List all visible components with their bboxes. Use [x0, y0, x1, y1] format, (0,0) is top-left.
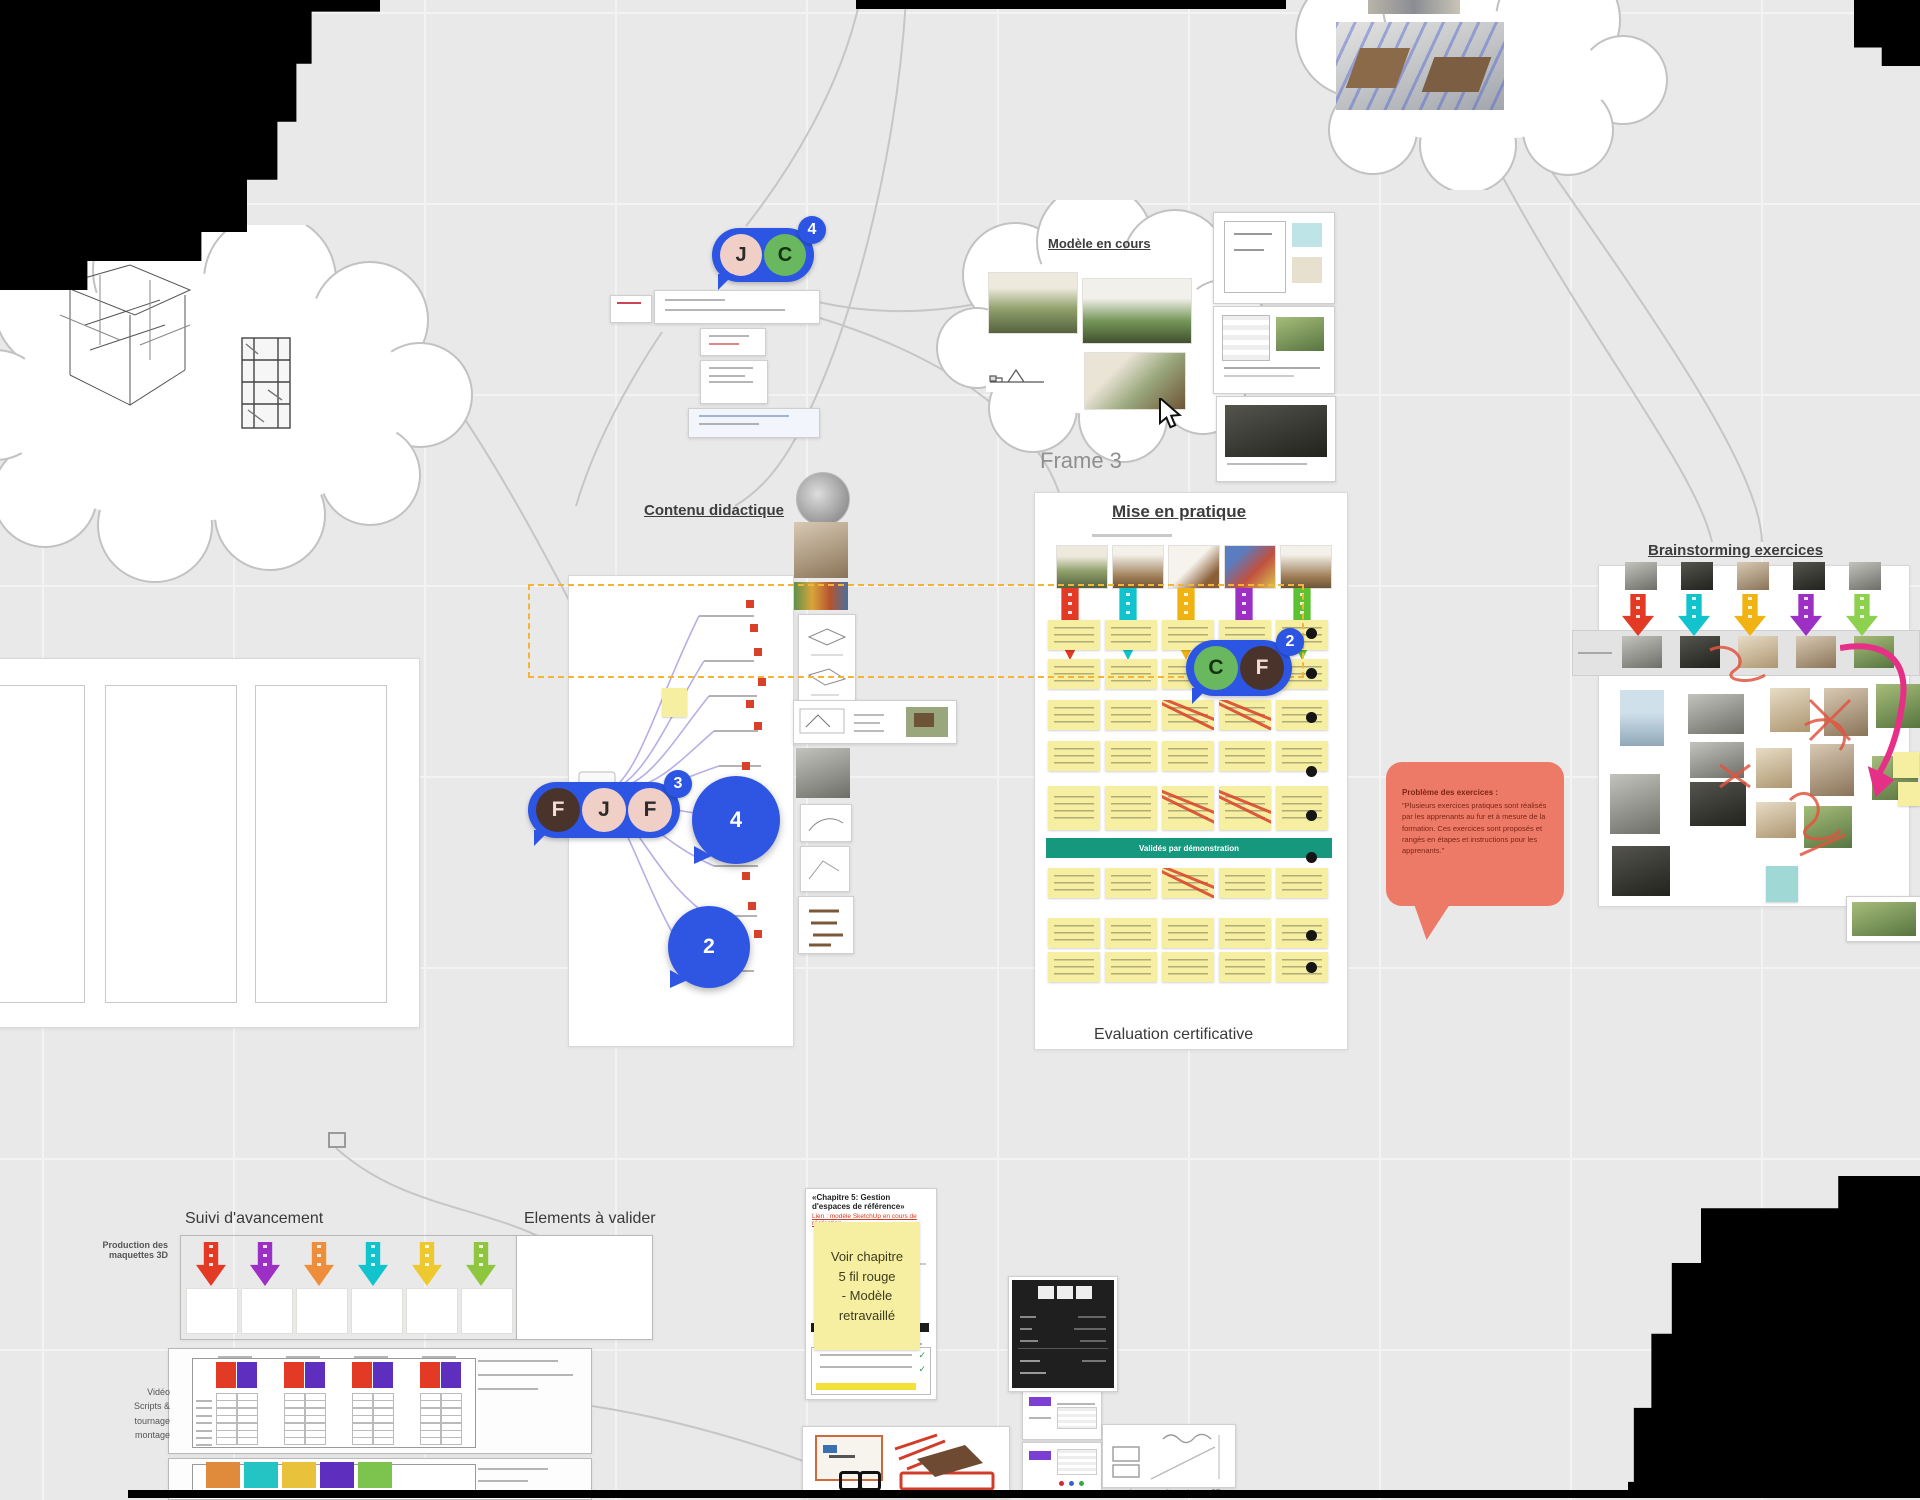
table-cell	[441, 1437, 462, 1445]
sketch-small-2[interactable]	[800, 846, 850, 892]
production-label-line: maquettes 3D	[88, 1250, 168, 1260]
row-label-bar	[196, 1437, 212, 1439]
sticky-note[interactable]	[1048, 918, 1100, 948]
brainstorm-photo[interactable]	[1737, 562, 1769, 590]
suivi-thumb[interactable]	[351, 1288, 403, 1334]
reference-card-house[interactable]	[1213, 306, 1335, 394]
sticky-note-line: Voir chapitre	[831, 1247, 903, 1267]
form-doc-2[interactable]	[1022, 1442, 1102, 1496]
sticky-text-lines	[1111, 959, 1151, 976]
brainstorm-photo-card[interactable]	[1846, 896, 1920, 942]
sticky-text-lines	[1111, 796, 1151, 821]
cloud-title-modele-en-cours[interactable]: Modèle en cours	[1048, 236, 1151, 251]
header-cell-red	[420, 1362, 440, 1388]
table-cell	[216, 1437, 237, 1445]
mise-thumb-furn[interactable]	[1112, 545, 1164, 589]
table-cell	[420, 1437, 441, 1445]
production-label-line: Production des	[88, 1240, 168, 1250]
comment-marker-2[interactable]: 2	[668, 906, 750, 988]
header-cell-purple	[441, 1362, 461, 1388]
sticky-text-lines	[1111, 748, 1151, 765]
row-label-bar	[196, 1444, 212, 1446]
sticky-note[interactable]	[1162, 741, 1214, 771]
sticky-text-lines	[1054, 796, 1094, 821]
mise-thumb-house[interactable]	[1056, 545, 1108, 589]
bullet-dot	[1306, 810, 1317, 821]
photo-landscape[interactable]	[796, 748, 850, 798]
brainstorm-photo[interactable]	[1793, 562, 1825, 590]
bullet-dot	[1306, 852, 1317, 863]
sticky-note[interactable]	[1276, 700, 1328, 730]
house-render-1[interactable]	[988, 272, 1078, 334]
sticky-text-lines	[1054, 707, 1094, 724]
avatar-f[interactable]: F	[536, 788, 580, 832]
sticky-note[interactable]	[1105, 741, 1157, 771]
avatar-f[interactable]: F	[1240, 646, 1284, 690]
sticky-note[interactable]	[1105, 918, 1157, 948]
sticky-note[interactable]	[1219, 918, 1271, 948]
sticky-note[interactable]	[1105, 700, 1157, 730]
whiteboard-canvas[interactable]: { "board": { "accent_blue": "#2b55e2", "…	[0, 0, 1920, 1498]
brainstorm-photo[interactable]	[1610, 774, 1660, 834]
presence-badge: 3	[664, 770, 692, 798]
board-icon-small[interactable]	[328, 1132, 346, 1148]
table-cell	[305, 1437, 326, 1445]
sticky-text-lines	[1111, 875, 1151, 892]
sticky-note[interactable]	[1105, 786, 1157, 830]
status-header-cell	[282, 1462, 316, 1488]
group-label-bar	[218, 1356, 252, 1358]
sticky-text-lines	[1168, 925, 1208, 942]
status-header-cell	[320, 1462, 354, 1488]
status-header-cell	[206, 1462, 240, 1488]
header-cell-red	[352, 1362, 372, 1388]
sticky-note[interactable]	[1105, 952, 1157, 982]
sticky-text-lines	[1111, 925, 1151, 942]
glasses-icon	[839, 1471, 877, 1487]
strike-mark	[1219, 700, 1271, 730]
sticky-note[interactable]	[1105, 868, 1157, 898]
row-label-bar	[196, 1430, 212, 1432]
sticky-note[interactable]	[1219, 700, 1271, 730]
bullet-dot	[1306, 962, 1317, 973]
video-label-line: montage	[100, 1428, 170, 1442]
sticky-text-lines	[1225, 875, 1265, 892]
sticky-note[interactable]	[1219, 952, 1271, 982]
sticky-note[interactable]	[1162, 700, 1214, 730]
reference-card-plan[interactable]	[1213, 212, 1335, 304]
form-doc-1[interactable]	[1022, 1390, 1102, 1440]
status-table-notes	[478, 1464, 582, 1486]
city-model-image-small[interactable]	[1368, 0, 1460, 14]
sticky-note[interactable]	[1048, 952, 1100, 982]
avatar-c[interactable]: C	[764, 234, 806, 276]
sticky-text-lines	[1054, 748, 1094, 765]
comment-marker-4[interactable]: 4	[692, 776, 780, 864]
mise-teal-banner[interactable]: Validés par démonstration	[1046, 838, 1332, 858]
suivi-thumb[interactable]	[296, 1288, 348, 1334]
oob-top-strip	[856, 0, 1286, 9]
frame-label-frame3[interactable]: Frame 3	[1040, 448, 1122, 474]
mise-thumb-bench[interactable]	[1224, 545, 1276, 589]
sticky-text-lines	[1054, 959, 1094, 976]
sticky-note[interactable]	[1162, 868, 1214, 898]
frame-empty-columns[interactable]	[0, 658, 420, 1028]
group-label-bar	[422, 1356, 456, 1358]
label-evaluation-certificative[interactable]: Evaluation certificative	[1094, 1026, 1253, 1044]
section-sketch[interactable]	[986, 356, 1048, 392]
avatar-j[interactable]: J	[582, 788, 626, 832]
mindmap-flag	[746, 700, 754, 708]
avatar-j[interactable]: J	[720, 234, 762, 276]
speech-bubble-exercices[interactable]: Problème des exercices : "Plusieurs exer…	[1386, 762, 1564, 906]
empty-column-3[interactable]	[255, 685, 387, 1003]
avatar-cluster-fjf[interactable]: FJF3	[528, 782, 680, 838]
sketch-small-1[interactable]	[800, 804, 852, 842]
sticky-note[interactable]	[1162, 952, 1214, 982]
video-label-line: tournage	[100, 1414, 170, 1428]
check-icon: ✓	[918, 1350, 926, 1361]
sticky-text-lines	[1225, 959, 1265, 976]
reference-card-dark-sketch[interactable]	[1216, 396, 1336, 482]
avatar-f[interactable]: F	[628, 788, 672, 832]
bullet-dot	[1306, 930, 1317, 941]
avatar-c[interactable]: C	[1194, 646, 1238, 690]
sticky-text-lines	[1225, 925, 1265, 942]
dark-settings-panel[interactable]	[1008, 1276, 1118, 1392]
city-model-image[interactable]	[1336, 22, 1504, 110]
brainstorm-photo[interactable]	[1620, 690, 1664, 746]
header-cell-red	[216, 1362, 236, 1388]
sticky-note[interactable]	[1219, 741, 1271, 771]
sticky-text-lines	[1054, 875, 1094, 892]
group-label-bar	[354, 1356, 388, 1358]
avatar-cluster-jc[interactable]: JC4	[712, 228, 814, 282]
mindmap-flag	[758, 678, 766, 686]
mise-thumb-wood[interactable]	[1280, 545, 1332, 589]
brainstorm-photo[interactable]	[1849, 562, 1881, 590]
row-label-bar	[196, 1407, 212, 1409]
doc-title: «Chapitre 5: Gestion d'espaces de référe…	[806, 1189, 936, 1211]
brainstorm-photo[interactable]	[1681, 562, 1713, 590]
sticky-note[interactable]	[1276, 868, 1328, 898]
mindmap-flag	[748, 902, 756, 910]
mindmap-small-sticky[interactable]	[662, 688, 687, 717]
pink-arrow	[1840, 620, 1920, 810]
header-cell-purple	[237, 1362, 257, 1388]
label-video-block: VidéoScripts &tournagemontage	[100, 1385, 170, 1443]
bullet-dot	[1306, 668, 1317, 679]
mise-caption-bar	[1092, 534, 1172, 537]
status-header-cell	[244, 1462, 278, 1488]
row-label-bar	[196, 1422, 212, 1424]
strike-mark	[1219, 786, 1271, 830]
label-elements-a-valider[interactable]: Elements à valider	[524, 1210, 656, 1228]
sticky-text-lines	[1282, 875, 1322, 892]
table-cell	[373, 1437, 394, 1445]
label-production-maquettes: Production desmaquettes 3D	[88, 1240, 168, 1260]
photo-portrait[interactable]	[794, 522, 848, 578]
oob-bottom-strip	[128, 1490, 1632, 1498]
suivi-thumb[interactable]	[186, 1288, 238, 1334]
table-cell	[237, 1437, 258, 1445]
sticky-text-lines	[1168, 959, 1208, 976]
mini-card-3[interactable]	[700, 360, 768, 404]
house-render-2[interactable]	[1082, 278, 1192, 344]
mise-thumb-tool[interactable]	[1168, 545, 1220, 589]
video-label-line: Scripts &	[100, 1399, 170, 1413]
sticky-note[interactable]	[1162, 786, 1214, 830]
comment-count: 4	[730, 807, 742, 833]
sticky-note[interactable]	[1219, 786, 1271, 830]
sticky-note[interactable]	[1048, 741, 1100, 771]
mouse-cursor	[1158, 398, 1184, 430]
sticky-text-lines	[1282, 748, 1322, 765]
suivi-thumb[interactable]	[406, 1288, 458, 1334]
sticky-note-line: retravaillé	[831, 1306, 903, 1326]
brainstorm-sticky-teal[interactable]	[1766, 866, 1798, 902]
header-cell-red	[284, 1362, 304, 1388]
sticky-text-lines	[1054, 925, 1094, 942]
sticky-note[interactable]	[1048, 868, 1100, 898]
annotated-screens-card[interactable]	[802, 1426, 1010, 1498]
empty-column-1[interactable]	[0, 685, 85, 1003]
band-photo[interactable]	[1622, 636, 1662, 668]
label-suivi-avancement[interactable]: Suivi d'avancement	[185, 1210, 323, 1228]
row-label-bar	[196, 1400, 212, 1402]
title-contenu-didactique[interactable]: Contenu didactique	[644, 502, 784, 519]
mindmap-flag	[742, 762, 750, 770]
sticky-text-lines	[1168, 748, 1208, 765]
header-cell-purple	[305, 1362, 325, 1388]
strike-mark	[1162, 786, 1214, 830]
mini-card-2[interactable]	[700, 328, 766, 356]
row-label-bar	[196, 1415, 212, 1417]
mini-card-red[interactable]	[610, 295, 652, 323]
avatar-cluster-cf[interactable]: CF2	[1186, 640, 1292, 696]
presence-badge: 2	[1276, 628, 1304, 656]
sticky-note[interactable]	[1276, 786, 1328, 830]
strike-mark	[1162, 700, 1214, 730]
video-label-line: Vidéo	[100, 1385, 170, 1399]
bullet-dot	[1306, 712, 1317, 723]
sketch-note-card[interactable]	[1102, 1424, 1236, 1488]
brainstorm-photo[interactable]	[1612, 846, 1670, 896]
sticky-note[interactable]	[1048, 786, 1100, 830]
bullet-dot	[1306, 628, 1317, 639]
sticky-note[interactable]	[1276, 952, 1328, 982]
sticky-text-lines	[1111, 707, 1151, 724]
check-icon: ✓	[918, 1364, 926, 1375]
empty-column-2[interactable]	[105, 685, 237, 1003]
bubble-title: Problème des exercices :	[1402, 788, 1550, 797]
presence-badge: 4	[798, 216, 826, 244]
group-label-bar	[286, 1356, 320, 1358]
comment-count: 2	[703, 935, 715, 959]
mindmap-flag	[742, 872, 750, 880]
doc-checklist: ✓ ✓	[811, 1347, 931, 1395]
suivi-thumb[interactable]	[241, 1288, 293, 1334]
mindmap-flag	[754, 722, 762, 730]
sticky-note[interactable]	[1162, 918, 1214, 948]
mini-card-toolbar[interactable]	[654, 290, 820, 324]
frame-elements-a-valider[interactable]	[516, 1235, 653, 1340]
bubble-body: "Plusieurs exercices pratiques sont réal…	[1402, 800, 1550, 856]
sketch-wood-pieces[interactable]	[798, 896, 854, 954]
sketch-strip-wide[interactable]	[793, 700, 957, 744]
sticky-note-line: - Modèle	[831, 1286, 903, 1306]
sketch-image-elevation[interactable]	[228, 330, 304, 436]
sticky-note-line: 5 fil rouge	[831, 1267, 903, 1287]
suivi-thumb[interactable]	[461, 1288, 513, 1334]
strike-mark	[1162, 868, 1214, 898]
sticky-note[interactable]	[1048, 700, 1100, 730]
mindmap-flag	[754, 930, 762, 938]
sticky-text-lines	[1225, 748, 1265, 765]
teal-banner-text: Validés par démonstration	[1139, 844, 1239, 853]
mini-card-4[interactable]	[688, 408, 820, 438]
photo-round-bw[interactable]	[796, 472, 850, 526]
sticky-note[interactable]	[1276, 741, 1328, 771]
sticky-voir-chapitre[interactable]: Voir chapitre5 fil rouge- Modèleretravai…	[814, 1222, 920, 1350]
title-mise-en-pratique[interactable]: Mise en pratique	[1112, 502, 1246, 522]
status-header-cell	[358, 1462, 392, 1488]
bullet-dot	[1306, 766, 1317, 777]
table-cell	[352, 1437, 373, 1445]
title-brainstorming[interactable]: Brainstorming exercices	[1648, 542, 1823, 559]
table-cell	[284, 1437, 305, 1445]
sticky-note[interactable]	[1219, 868, 1271, 898]
sticky-note[interactable]	[1276, 918, 1328, 948]
video-table-notes	[478, 1356, 582, 1394]
band-label-bar	[1578, 652, 1612, 654]
brainstorm-photo[interactable]	[1625, 562, 1657, 590]
header-cell-purple	[373, 1362, 393, 1388]
